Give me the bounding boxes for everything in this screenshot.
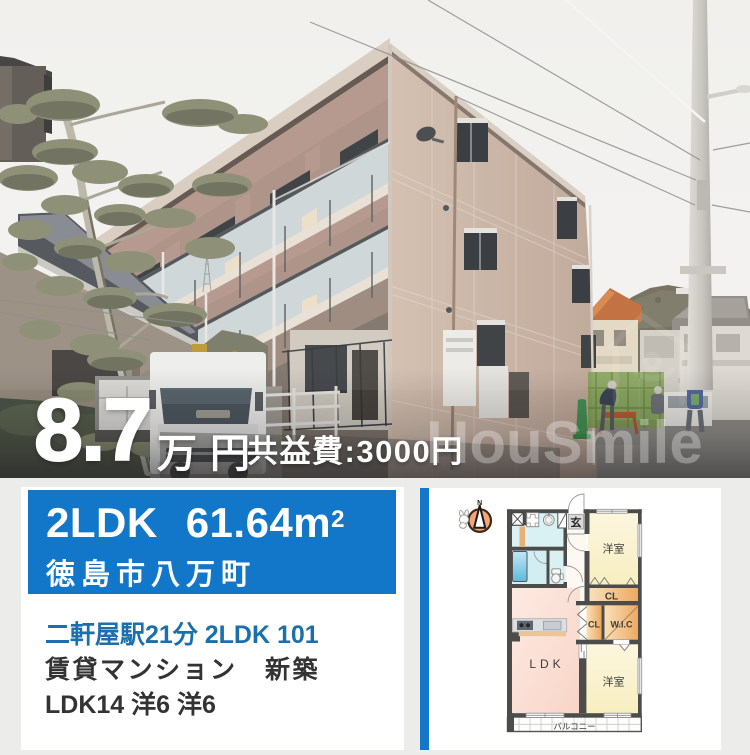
svg-text:LDK: LDK xyxy=(529,657,564,671)
svg-text:W.I.C: W.I.C xyxy=(611,620,633,630)
svg-text:洋室: 洋室 xyxy=(603,542,625,556)
svg-text:バルコニー: バルコニー xyxy=(553,722,595,732)
svg-text:CL: CL xyxy=(605,592,618,603)
svg-text:CL: CL xyxy=(588,620,600,630)
svg-text:洋室: 洋室 xyxy=(603,675,625,689)
svg-text:玄: 玄 xyxy=(570,515,581,529)
